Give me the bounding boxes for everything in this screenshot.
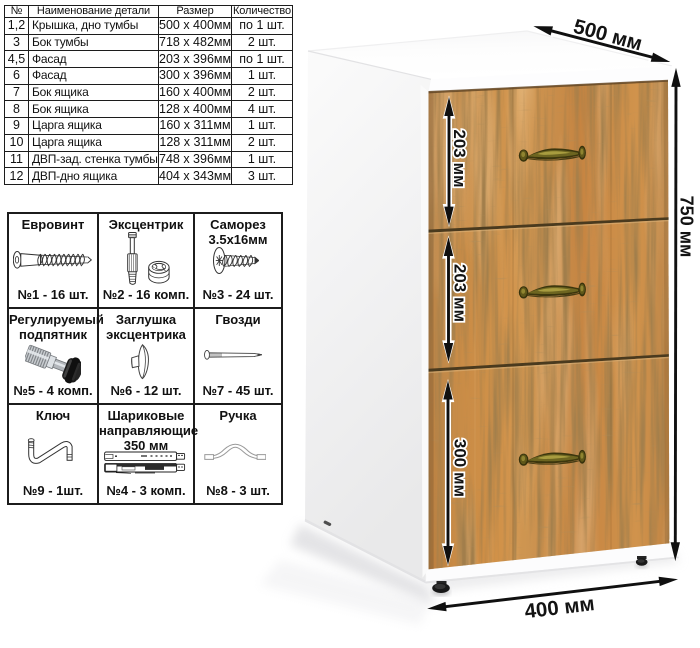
svg-text:203 мм: 203 мм <box>451 264 470 322</box>
svg-text:750 мм: 750 мм <box>677 196 697 258</box>
svg-text:203 мм: 203 мм <box>450 129 469 187</box>
svg-text:300 мм: 300 мм <box>451 439 470 497</box>
